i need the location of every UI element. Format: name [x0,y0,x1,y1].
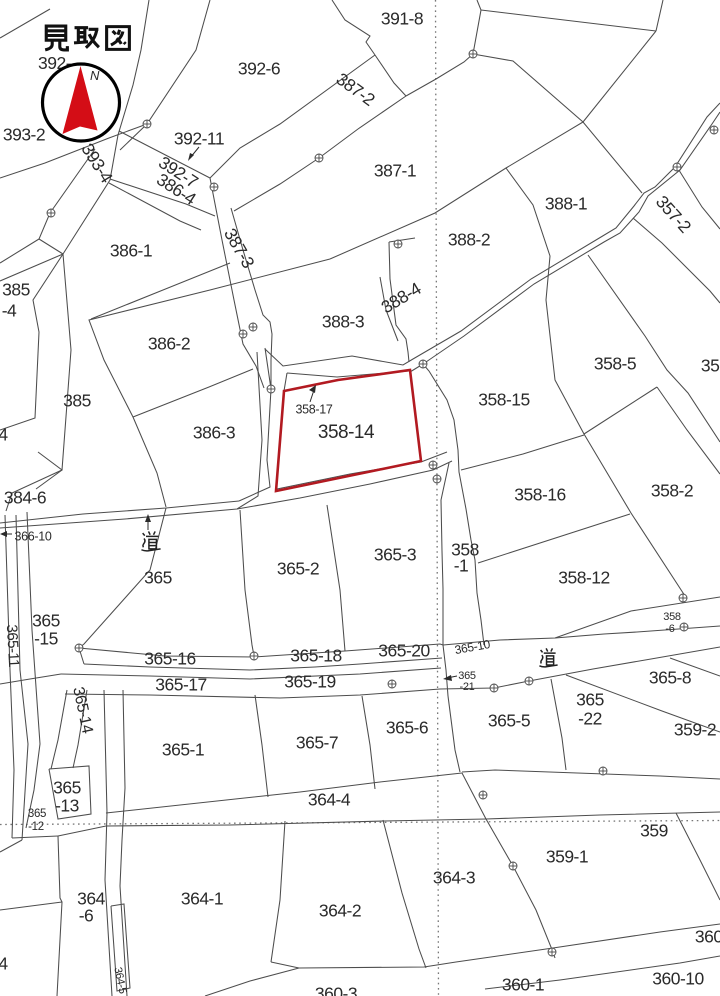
svg-text:364-2: 364-2 [319,900,361,920]
svg-text:388-1: 388-1 [545,193,587,213]
svg-text:358-15: 358-15 [478,389,530,409]
svg-text:360-10: 360-10 [652,968,704,988]
svg-text:-13: -13 [55,795,79,815]
svg-text:N: N [90,68,100,83]
svg-text:392-11: 392-11 [174,128,224,148]
svg-text:-4: -4 [2,300,17,320]
svg-text:366-10: 366-10 [14,530,51,544]
svg-text:365-3: 365-3 [374,544,416,564]
svg-text:365-2: 365-2 [277,558,319,578]
svg-text:365-6: 365-6 [386,717,428,737]
svg-text:360-3: 360-3 [315,983,357,996]
svg-text:365-20: 365-20 [378,640,430,660]
svg-text:359: 359 [640,820,668,840]
svg-text:365-1: 365-1 [162,739,204,759]
svg-text:365-16: 365-16 [144,648,196,668]
svg-text:365-5: 365-5 [488,710,530,730]
svg-text:388-2: 388-2 [448,229,490,249]
svg-text:365: 365 [576,689,604,709]
svg-text:391-8: 391-8 [381,8,423,28]
svg-text:387-1: 387-1 [374,160,416,180]
svg-text:365-19: 365-19 [284,671,336,691]
svg-text:-12: -12 [28,821,44,833]
svg-text:365-11: 365-11 [3,624,22,668]
svg-text:358-16: 358-16 [514,484,566,504]
svg-text:4: 4 [0,953,8,973]
svg-text:386-1: 386-1 [110,240,152,260]
svg-text:365: 365 [28,808,46,820]
svg-text:365-18: 365-18 [290,645,342,665]
svg-text:386-3: 386-3 [193,422,235,442]
svg-text:-15: -15 [34,628,58,648]
svg-text:365: 365 [32,610,60,630]
svg-text:393-2: 393-2 [3,124,45,144]
svg-text:385: 385 [2,279,30,299]
svg-text:388-3: 388-3 [322,311,364,331]
svg-text:364-4: 364-4 [308,789,351,809]
svg-text:358-2: 358-2 [651,480,693,500]
svg-text:360-2: 360-2 [695,926,720,946]
svg-text:358-17: 358-17 [295,403,332,417]
svg-text:-22: -22 [578,708,602,728]
svg-text:-21: -21 [460,681,475,693]
svg-text:384-6: 384-6 [4,487,46,507]
svg-text:364-1: 364-1 [181,888,223,908]
svg-text:365: 365 [144,567,172,587]
svg-text:358-3: 358-3 [701,355,720,375]
svg-text:358-14: 358-14 [318,422,375,443]
svg-text:365-8: 365-8 [649,667,691,687]
svg-text:359-1: 359-1 [546,846,588,866]
svg-text:-6: -6 [665,623,674,635]
svg-text:365-7: 365-7 [296,732,338,752]
svg-text:358-5: 358-5 [594,353,636,373]
svg-text:365: 365 [53,777,81,797]
svg-text:359-2: 359-2 [674,719,716,739]
svg-text:4: 4 [0,424,8,444]
svg-text:-6: -6 [79,905,94,925]
svg-text:392-6: 392-6 [238,58,280,78]
svg-text:364-3: 364-3 [433,867,475,887]
svg-text:360-1: 360-1 [502,974,544,994]
svg-text:385: 385 [63,390,91,410]
svg-text:-1: -1 [454,555,469,575]
svg-text:358-12: 358-12 [558,567,610,587]
svg-text:386-2: 386-2 [148,333,190,353]
svg-text:365-17: 365-17 [155,674,207,694]
svg-text:358: 358 [663,611,681,623]
